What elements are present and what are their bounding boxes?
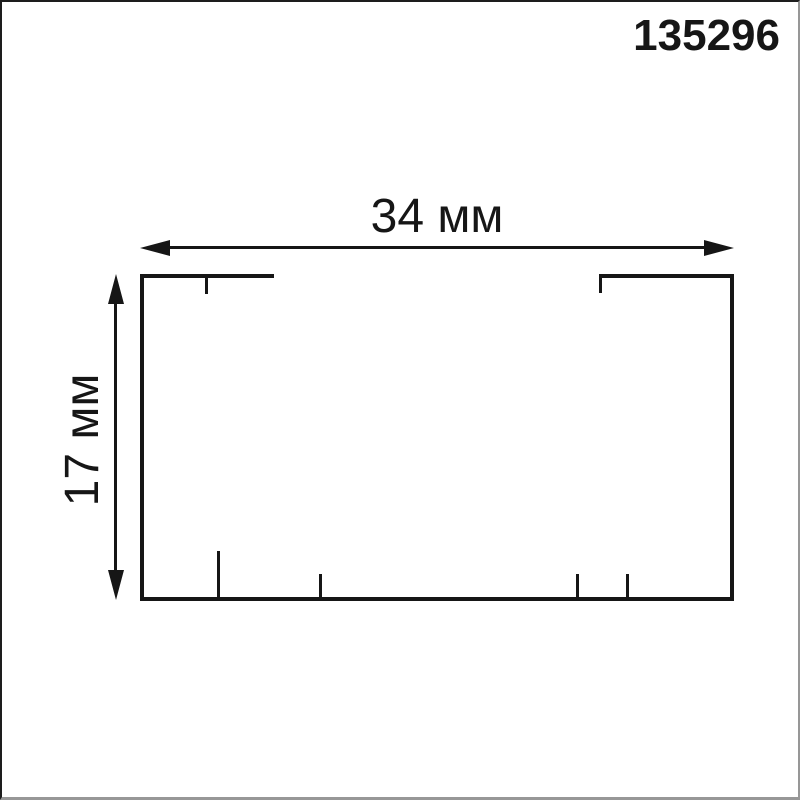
height-arrow-down-icon [108, 570, 124, 600]
width-dimension-line [157, 246, 717, 249]
height-arrow-up-icon [108, 274, 124, 304]
profile-tick-top-left [205, 276, 208, 294]
profile-tick-top-right [599, 276, 602, 293]
profile-top-right-segment [599, 274, 734, 278]
profile-tick-bottom-1 [217, 551, 220, 597]
profile-tick-bottom-4 [626, 574, 629, 597]
width-dimension-label: 34 мм [140, 193, 734, 241]
width-arrow-right-icon [704, 240, 734, 256]
profile-bottom-edge [140, 597, 734, 601]
height-dimension-label: 17 мм [59, 374, 107, 507]
drawing-page: 135296 34 мм 17 мм [0, 0, 800, 800]
part-number: 135296 [633, 14, 780, 58]
profile-tick-bottom-3 [576, 574, 579, 597]
profile-left-edge [140, 274, 144, 601]
profile-tick-bottom-2 [319, 574, 322, 597]
height-dimension-line [114, 300, 117, 574]
profile-right-edge [730, 274, 734, 601]
width-arrow-left-icon [140, 240, 170, 256]
